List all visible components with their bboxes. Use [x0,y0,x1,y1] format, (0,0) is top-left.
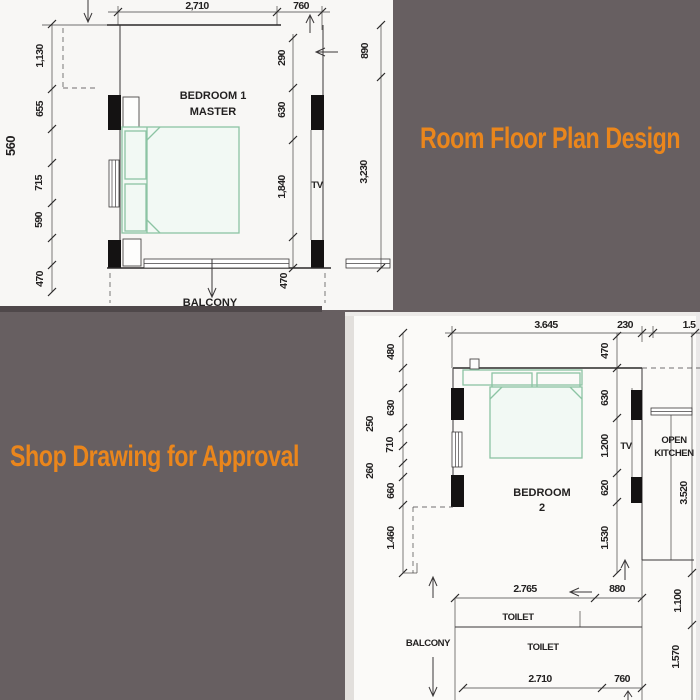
dim-label: 3,230 [358,160,370,184]
dim-label: 1.460 [385,526,397,550]
wall-block [311,240,324,268]
dim-label: 3.645 [534,319,558,331]
dim-label: 560 [3,136,18,156]
dim-chain-right-inner: 290 630 1,840 470 [276,34,297,289]
dim-label: 1,130 [34,44,46,68]
scan-edge [696,312,700,700]
wall-block [311,95,324,130]
bed [122,127,239,233]
dim-label: 2,710 [185,0,209,12]
dim-label: 890 [359,42,371,58]
tv-label: TV [311,180,323,191]
arrow-up-icon [624,691,632,700]
arrow-left-icon [316,48,338,56]
arrow-up-icon [306,15,314,33]
dim-label: 470 [599,342,611,358]
arrow-left-icon [570,588,592,596]
dim-label: 630 [599,389,611,405]
toilet-label: TOILET [527,642,559,653]
dim-chain-right: 1.100 1.570 [670,333,696,700]
floor-plan-master-bedroom: 2,710 760 BEDRO [0,0,393,310]
arrow-up-icon [621,560,629,580]
floor-plan-a-drawing: 2,710 760 BEDRO [0,0,393,310]
dim-label: 470 [34,270,46,286]
room-label: MASTER [190,106,237,118]
wall-block [631,390,642,420]
dim-line-top: 3.645 230 1.5 [445,319,700,368]
dim-label: 590 [33,211,45,227]
balcony-door [144,259,390,268]
wall-block [631,477,642,503]
dim-label: 1,840 [276,175,288,199]
dim-label: 630 [276,101,288,117]
wall-block [108,240,121,268]
dim-chain-left: 1,130 655 715 590 470 560 [3,20,96,296]
balcony-area: BALCONY [406,577,451,696]
window [109,160,119,207]
dim-label: 715 [33,174,45,190]
toilet-area: TOILET TOILET 2.710 760 [455,560,646,700]
floor-plan-bedroom-2: 3.645 230 1.5 480 630 710 660 1.460 250 … [345,312,700,700]
dim-label: 880 [609,583,625,595]
arrow-up-icon [429,577,437,598]
nightstand [123,97,139,127]
room-label: BEDROOM [513,487,570,499]
dim-label: 630 [385,399,397,415]
arrow-down-icon [84,0,92,22]
dim-label: 230 [617,319,633,331]
floor-plan-b-drawing: 3.645 230 1.5 480 630 710 660 1.460 250 … [345,312,700,700]
dim-label: 470 [278,272,290,288]
toilet-label: TOILET [502,612,534,623]
balcony-label: BALCONY [406,638,451,649]
dim-label: 250 [364,415,376,431]
kitchen-label: KITCHEN [654,448,694,459]
dim-label: 760 [614,673,630,685]
wall-block [451,475,464,507]
dim-label: 760 [293,0,309,12]
scan-edge [345,312,700,316]
photo-edge-shadow [0,306,322,312]
dim-label: 1.530 [599,526,611,550]
dim-label: 260 [364,462,376,478]
nightstand [123,239,141,266]
room-label: 2 [539,502,545,514]
open-kitchen: OPEN KITCHEN 3.520 [642,408,694,560]
pillow [492,373,532,388]
dim-label: 1.570 [670,645,682,669]
dim-label: 480 [385,343,397,359]
bed [463,359,582,458]
headboard [463,370,582,385]
dim-label: 2.765 [513,583,537,595]
dim-label: 660 [385,482,397,498]
kitchen-label: OPEN [661,435,687,446]
pillow [537,373,580,388]
dim-label: 620 [599,479,611,495]
dim-label: 3.520 [678,481,690,505]
wall-block [108,95,121,130]
poster-subtitle: Shop Drawing for Approval [10,440,299,473]
scan-edge [345,312,354,700]
dim-chain-right-outer: 890 3,230 [358,21,385,272]
dim-chain-left: 480 630 710 660 1.460 250 260 [364,329,417,577]
nightstand [470,359,479,369]
dim-label: 1.100 [672,589,684,613]
dim-label: 710 [384,436,396,452]
dim-label: 2.710 [528,673,552,685]
dim-label: 655 [34,100,46,116]
dim-label: 1.5 [683,319,697,331]
dim-label: 1.200 [599,434,611,458]
wall-block [451,388,464,420]
arrow-down-icon [429,657,437,696]
window [452,432,462,467]
tv-label: TV [620,441,632,452]
poster-title: Room Floor Plan Design [420,122,680,155]
room-label: BEDROOM 1 [180,90,247,102]
dim-label: 290 [276,49,288,65]
